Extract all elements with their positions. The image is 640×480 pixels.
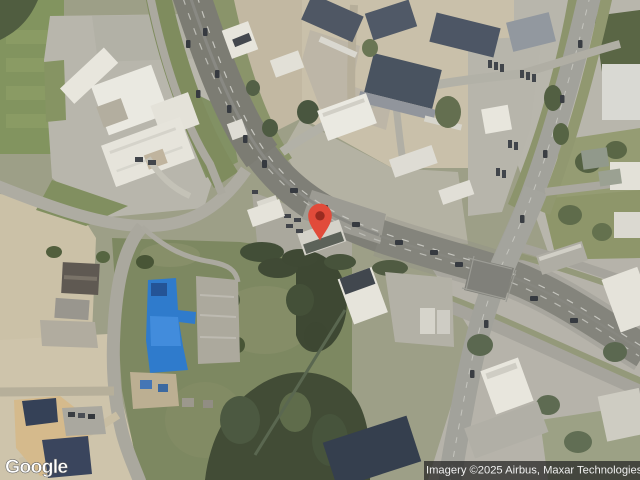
svg-text:Google: Google	[5, 456, 68, 478]
svg-text:Imagery ©2025 Airbus, Maxar Te: Imagery ©2025 Airbus, Maxar Technologies	[426, 465, 640, 477]
